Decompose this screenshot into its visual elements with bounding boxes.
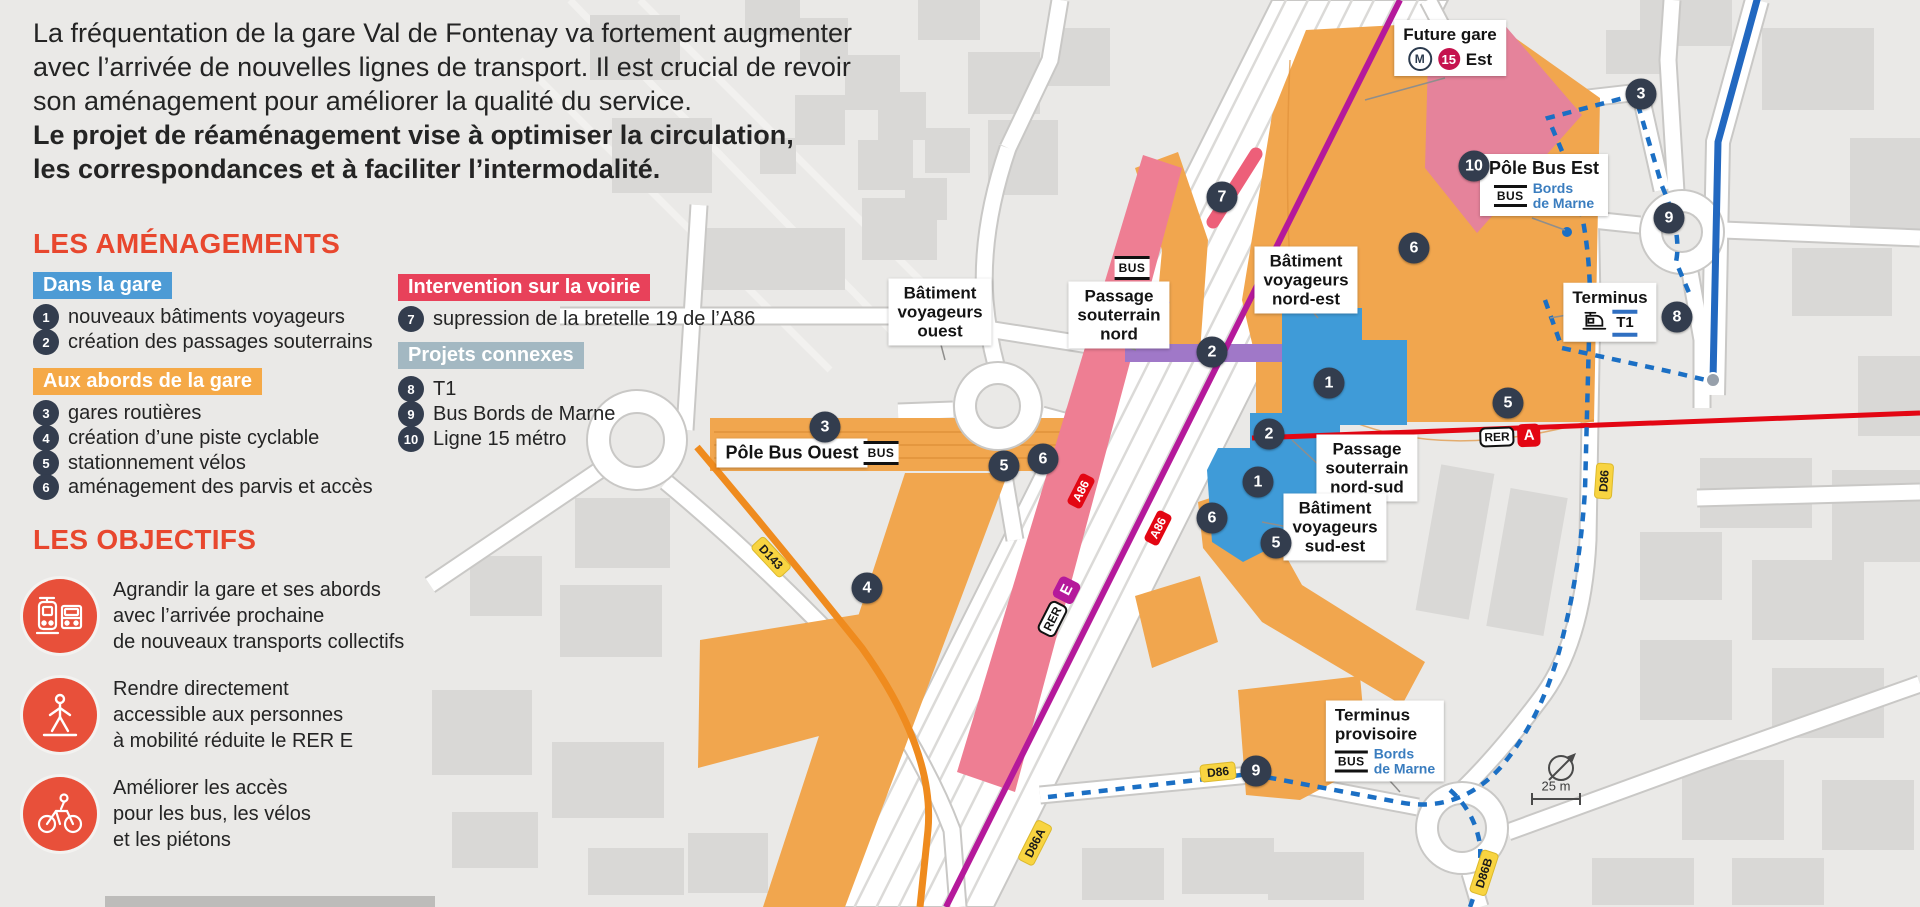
item-number-badge: 8 [398,376,424,402]
dans-la-gare-badge: Dans la gare [33,272,172,299]
map-badge-9-south: 9 [1241,756,1272,787]
legend-item: 3 gares routières [33,400,201,426]
legend-item: 6 aménagement des parvis et accès [33,474,373,500]
bords-de-marne-destination: Bordsde Marne [1533,181,1594,211]
tram-icon [1582,312,1606,335]
bus-chip-pole-bus-ouest: BUS [864,441,899,465]
scale-label: 25 m [1542,779,1571,794]
cyclist-icon [23,777,97,851]
item-label: T1 [433,378,456,401]
legend-item: 1 nouveaux bâtiments voyageurs [33,304,345,330]
voirie-badge: Intervention sur la voirie [398,274,650,301]
objective-item: Agrandir la gare et ses abordsavec l’arr… [23,577,404,655]
intro-line: son aménagement pour améliorer la qualit… [33,84,852,118]
bus-stop-dot [1562,227,1572,237]
connexes-badge: Projets connexes [398,342,584,369]
intro-line: avec l’arrivée de nouvelles lignes de tr… [33,50,852,84]
map-badge-5-south: 5 [1261,528,1292,559]
bords-de-marne-destination: Bordsde Marne [1374,747,1435,777]
item-number-badge: 5 [33,450,59,476]
item-number-badge: 2 [33,329,59,355]
map-badge-6-east: 6 [1399,233,1430,264]
item-number-badge: 7 [398,306,424,332]
label-pole-bus-ouest: Pôle Bus Ouest [716,439,867,468]
objective-text: Agrandir la gare et ses abordsavec l’arr… [113,577,404,655]
label-batiment-voyageurs-nord-est: Bâtimentvoyageursnord-est [1254,247,1357,314]
item-label: aménagement des parvis et accès [68,476,373,499]
rer-a-badge: RERA [1479,423,1541,448]
metro-icon: M [1408,47,1432,71]
metro-15-icon: 15 [1438,48,1460,70]
item-label: gares routières [68,402,201,425]
label-terminus-t1: Terminus T1 [1563,283,1656,342]
item-number-badge: 3 [33,400,59,426]
map-badge-6-south: 6 [1197,503,1228,534]
d86-badge-south: D86 [1199,761,1237,783]
bus-chip-passage-nord: BUS [1115,256,1150,280]
label-terminus-provisoire: Terminus provisoire BUS Bordsde Marne [1326,701,1444,782]
label-passage-souterrain-nord-sud: Passagesouterrainnord-sud [1316,435,1417,502]
d86-badge-east: D86 [1594,462,1614,499]
infographic-canvas: La fréquentation de la gare Val de Fonte… [0,0,1920,907]
map-badge-1-south: 1 [1243,467,1274,498]
intro-line: La fréquentation de la gare Val de Fonte… [33,16,852,50]
label-passage-souterrain-nord: Passagesouterrainnord [1068,282,1169,349]
map-badge-9-east: 9 [1654,203,1685,234]
legend-item: 8 T1 [398,376,456,402]
intro-text: La fréquentation de la gare Val de Fonte… [33,16,852,186]
item-label: supression de la bretelle 19 de l’A86 [433,308,755,331]
item-number-badge: 9 [398,401,424,427]
bus-chip-pole-bus-est: BUS [1494,185,1527,207]
map-badge-5-west: 5 [989,451,1020,482]
item-number-badge: 4 [33,425,59,451]
item-label: stationnement vélos [68,452,246,475]
map-badge-6-west: 6 [1028,444,1059,475]
legend-item: 7 supression de la bretelle 19 de l’A86 [398,306,755,332]
t1-chip: T1 [1612,310,1638,337]
label-batiment-voyageurs-sud-est: Bâtimentvoyageurssud-est [1283,494,1386,561]
label-future-gare-est: Future gare M 15 Est [1394,20,1506,76]
objective-text: Améliorer les accèspour les bus, les vél… [113,775,311,853]
item-number-badge: 10 [398,426,424,452]
amenagements-title: LES AMÉNAGEMENTS [33,228,340,260]
map-badge-2-north: 2 [1197,337,1228,368]
legend-item: 5 stationnement vélos [33,450,246,476]
tram-bus-icon [23,579,97,653]
label-pole-bus-est: Pôle Bus Est BUS Bordsde Marne [1480,154,1608,216]
legend-item: 9 Bus Bords de Marne [398,401,615,427]
map-badge-1-north: 1 [1314,368,1345,399]
objectifs-title: LES OBJECTIFS [33,524,256,556]
intro-line-bold: les correspondances et à faciliter l’int… [33,152,852,186]
item-number-badge: 1 [33,304,59,330]
label-batiment-voyageurs-ouest: Bâtimentvoyageursouest [888,279,991,346]
t1-terminus-dot [1706,373,1720,387]
legend-item: 10 Ligne 15 métro [398,426,566,452]
item-label: Ligne 15 métro [433,428,566,451]
objective-text: Rendre directementaccessible aux personn… [113,676,353,754]
rer-a-letter: A [1517,423,1541,447]
pedestrian-icon [23,678,97,752]
item-label: Bus Bords de Marne [433,403,615,426]
item-label: création d’une piste cyclable [68,427,319,450]
map-badge-3-west: 3 [810,412,841,443]
map-badge-7: 7 [1207,182,1238,213]
map-badge-2-south: 2 [1254,419,1285,450]
map-badge-3-east: 3 [1626,79,1657,110]
map-badge-4: 4 [852,573,883,604]
map-badge-8: 8 [1662,302,1693,333]
objective-item: Améliorer les accèspour les bus, les vél… [23,775,311,853]
intro-line-bold: Le projet de réaménagement vise à optimi… [33,118,852,152]
bus-chip-terminus-provisoire: BUS [1335,751,1368,773]
objective-item: Rendre directementaccessible aux personn… [23,676,353,754]
legend-item: 4 création d’une piste cyclable [33,425,319,451]
item-label: nouveaux bâtiments voyageurs [68,306,345,329]
item-number-badge: 6 [33,474,59,500]
aux-abords-badge: Aux abords de la gare [33,368,262,395]
item-label: création des passages souterrains [68,331,373,354]
legend-item: 2 création des passages souterrains [33,329,373,355]
map-badge-5-east: 5 [1493,388,1524,419]
map-badge-10: 10 [1459,151,1490,182]
